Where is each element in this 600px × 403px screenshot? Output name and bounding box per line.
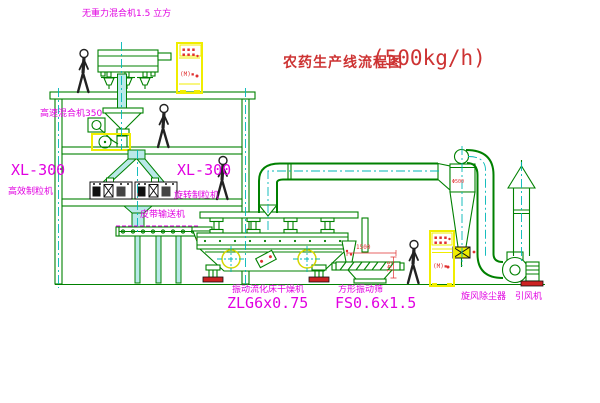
label-induced-draft-fan: 引风机: [515, 293, 542, 302]
label-sieve-model: FS0.6x1.5: [335, 296, 416, 311]
induced-draft-fan: [503, 252, 544, 286]
label-granulator-right-name: 旋转制粒机: [174, 192, 219, 201]
person-figure-floor2: [158, 105, 169, 148]
label-cyclone: 旋风除尘器: [461, 293, 506, 302]
dimension-sieve-length: 1500: [356, 245, 370, 251]
square-vibrating-sieve: [332, 250, 404, 283]
diagram-title-capacity: (500kg/h): [372, 46, 486, 70]
dimension-cyclone: Φ500: [452, 180, 464, 185]
person-figure-ground: [408, 241, 419, 284]
granulator-left: [90, 178, 132, 199]
cabinet-bottom-indicator: (M)▪: [433, 264, 447, 270]
label-granulator-right-model: XL-300: [177, 163, 231, 178]
fluid-bed-dryer: [197, 212, 368, 282]
cabinet-bottom-marks-row2: ▪▪▪: [434, 241, 449, 246]
label-high-speed-mixer: 高速混合机350: [40, 110, 102, 119]
top-feed-chute: [118, 74, 127, 112]
dimension-sieve-height: 541: [385, 261, 391, 272]
cabinet-top-indicator: (M)▪: [180, 72, 194, 78]
belt-conveyor: [116, 227, 198, 283]
label-gravity-free-mixer: 无重力混合机1.5 立方: [82, 10, 171, 19]
diagram-canvas: 农药生产线流程图 (500kg/h) 无重力混合机1.5 立方 高速混合机350…: [0, 0, 600, 403]
label-dryer-model: ZLG6x0.75: [227, 296, 308, 311]
gravity-free-mixer: [98, 50, 171, 89]
person-figure-roof: [78, 50, 89, 93]
label-belt-conveyor: 皮带输送机: [140, 211, 185, 220]
label-granulator-left-model: XL-300: [11, 163, 65, 178]
label-granulator-left-name: 高效制粒机: [8, 188, 53, 197]
cabinet-top-marks-row2: ▪▪▪: [182, 53, 197, 58]
granulator-right: [135, 178, 177, 199]
